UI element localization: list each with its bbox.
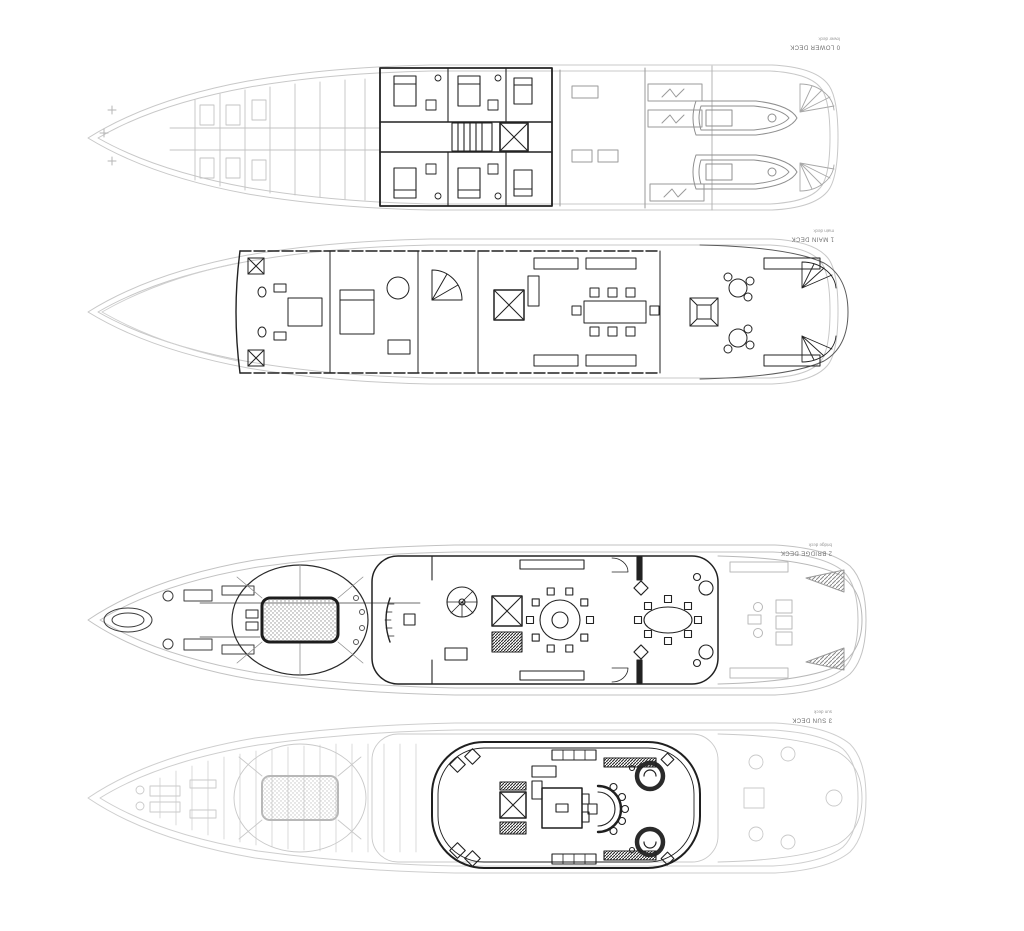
elevator-shaft — [500, 123, 528, 151]
tender-boat — [693, 101, 797, 135]
foredeck-spa — [232, 565, 368, 675]
wheelhouse — [385, 556, 477, 684]
aft-deck — [660, 245, 848, 379]
sunpad — [604, 851, 656, 860]
stair — [612, 558, 628, 572]
engine-icon — [662, 115, 684, 123]
bathtub — [387, 277, 409, 299]
stair — [806, 570, 844, 592]
tender-boat — [693, 155, 797, 189]
skylight — [690, 298, 718, 326]
aft-deck-faded — [718, 556, 862, 684]
dining-area — [572, 258, 659, 366]
cabin-beds — [394, 76, 532, 198]
owner-bed — [340, 290, 374, 334]
main-deck-interior — [236, 245, 848, 379]
sunpad — [604, 758, 656, 767]
hull-outline — [88, 65, 838, 210]
skylounge — [520, 560, 594, 680]
stair — [806, 648, 844, 670]
yacht-ga-sheet: 0 LOWER DECK lower deck 1 MAIN DECK main… — [0, 0, 1024, 931]
dining-table — [584, 301, 646, 323]
stair — [500, 782, 526, 790]
oval-table — [644, 607, 692, 633]
sun-deck-island — [432, 742, 700, 868]
bridge-deckhouse — [372, 556, 718, 684]
deck-label-title: 3 SUN DECK — [776, 715, 832, 723]
round-table — [729, 329, 747, 347]
main-lobby — [432, 251, 524, 373]
stair — [452, 123, 492, 151]
bar-counter — [532, 766, 556, 777]
deck-label-main: 1 MAIN DECK main deck — [778, 228, 834, 242]
helm-chair — [404, 614, 415, 625]
lower-structure-ghost — [136, 734, 862, 862]
stern-stairs — [802, 262, 836, 362]
deck-label-title: 1 MAIN DECK — [778, 234, 834, 242]
sun-deck-table — [542, 788, 582, 828]
aft-lounge — [634, 574, 713, 667]
deck-label-lower: 0 LOWER DECK lower deck — [784, 36, 840, 50]
round-dining-table — [540, 600, 580, 640]
deck-label-sun: 3 SUN DECK sun deck — [776, 709, 832, 723]
bow-deck-lines — [102, 263, 238, 361]
guest-cabins-block — [380, 68, 552, 206]
hull-outline — [88, 239, 838, 384]
spa-pool — [262, 598, 338, 642]
hull-outline — [88, 545, 866, 695]
wardrobe — [288, 298, 322, 326]
deck-label-title: 0 LOWER DECK — [784, 42, 840, 50]
deck-label-title: 2 BRIDGE DECK — [776, 548, 832, 556]
deck-label-bridge: 2 BRIDGE DECK bridge deck — [776, 542, 832, 556]
stern-stairs — [800, 84, 834, 191]
stair — [492, 632, 522, 652]
deck-plans-drawing — [0, 0, 1024, 931]
engine-icon — [662, 89, 684, 97]
bar-counter — [532, 781, 542, 799]
hull-outline — [88, 723, 866, 873]
deck-plan-sun — [88, 723, 866, 873]
stair — [612, 668, 628, 682]
bar — [588, 784, 629, 835]
engine-icon — [664, 189, 686, 197]
front-bulkhead — [236, 251, 240, 373]
tender-garage — [693, 66, 797, 210]
deck-plan-lower — [88, 65, 838, 210]
engine-room — [560, 68, 704, 208]
salon — [528, 258, 578, 366]
deck-plan-main — [88, 239, 848, 384]
lounger — [450, 757, 466, 773]
spa-pool-ghost — [262, 776, 338, 820]
round-table — [729, 279, 747, 297]
deck-plan-bridge — [88, 545, 866, 695]
owner-suite — [248, 251, 418, 373]
stair — [500, 822, 526, 834]
